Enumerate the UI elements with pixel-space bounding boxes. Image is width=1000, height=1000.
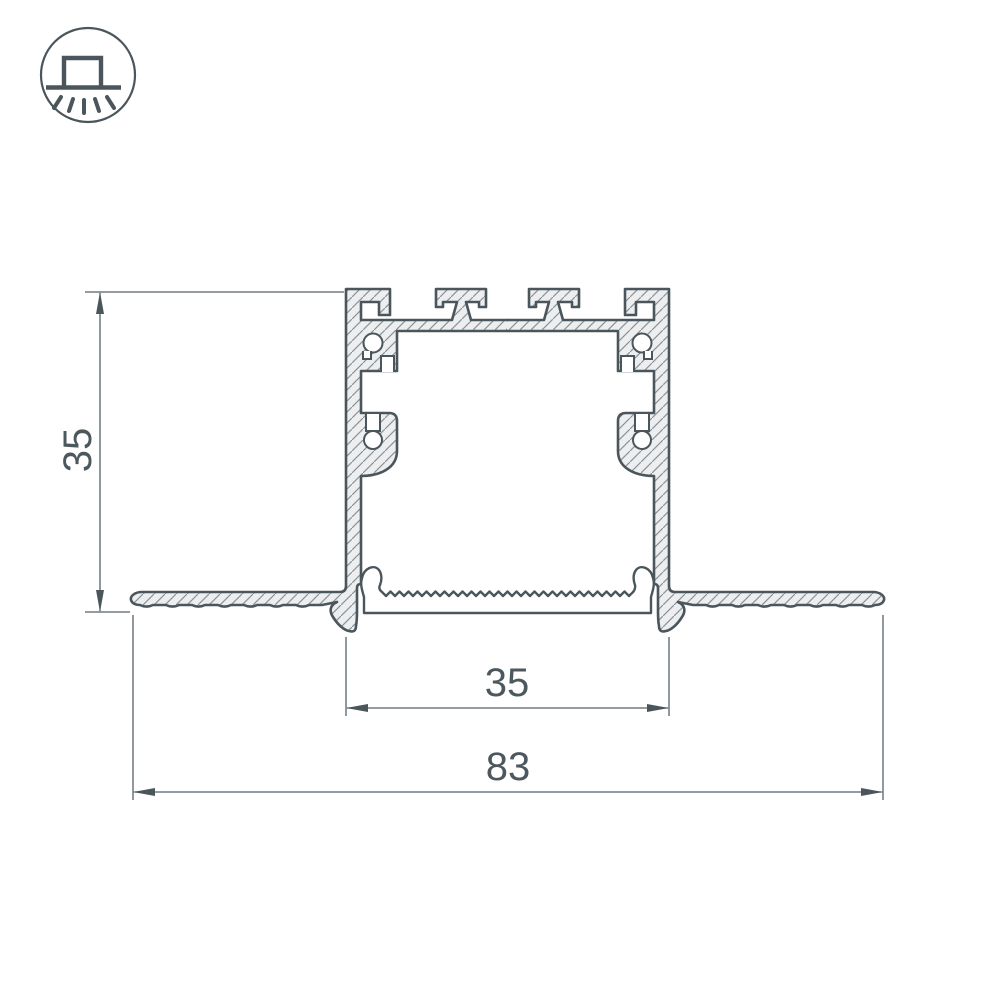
profile-cross-section bbox=[131, 289, 884, 631]
inner-width-dimension-label: 35 bbox=[485, 661, 530, 705]
overall-width-dimension-label: 83 bbox=[486, 745, 531, 789]
dimension-inner-width: 35 bbox=[346, 637, 669, 716]
arrow-right-icon bbox=[861, 788, 883, 796]
arrow-down-icon bbox=[96, 590, 104, 612]
diffuser-plate bbox=[361, 567, 654, 613]
recessed-mount-luminaire-icon bbox=[41, 28, 135, 122]
icon-fixture-box bbox=[64, 58, 101, 87]
profile-right-half bbox=[507, 289, 884, 631]
drawing-page: 35 35 83 bbox=[0, 0, 1000, 1000]
icon-light-rays bbox=[54, 97, 114, 113]
dimension-height: 35 bbox=[56, 292, 344, 612]
arrow-left-icon bbox=[346, 704, 368, 712]
technical-drawing: 35 35 83 bbox=[0, 0, 1000, 1000]
arrow-left-icon bbox=[133, 788, 155, 796]
profile-left-half bbox=[131, 289, 508, 631]
arrow-right-icon bbox=[647, 704, 669, 712]
height-dimension-label: 35 bbox=[56, 428, 100, 473]
arrow-up-icon bbox=[96, 292, 104, 314]
